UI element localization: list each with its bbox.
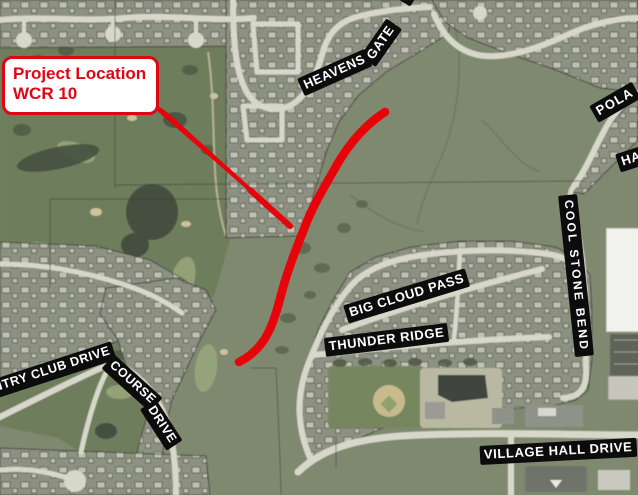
aerial-map: HEAVENS GATE M POLA HA COOL STONE BEND B… <box>0 0 638 495</box>
warehouse-building <box>606 228 638 332</box>
project-location-callout: Project Location WCR 10 <box>2 56 159 115</box>
village-hall-building <box>525 466 587 492</box>
neighborhood-top-strip <box>0 0 256 48</box>
school-park-area <box>328 358 502 428</box>
callout-line1: Project Location <box>13 64 146 84</box>
cul-de-sac <box>64 470 86 492</box>
callout-line2: WCR 10 <box>13 84 146 104</box>
school-building <box>438 375 488 402</box>
